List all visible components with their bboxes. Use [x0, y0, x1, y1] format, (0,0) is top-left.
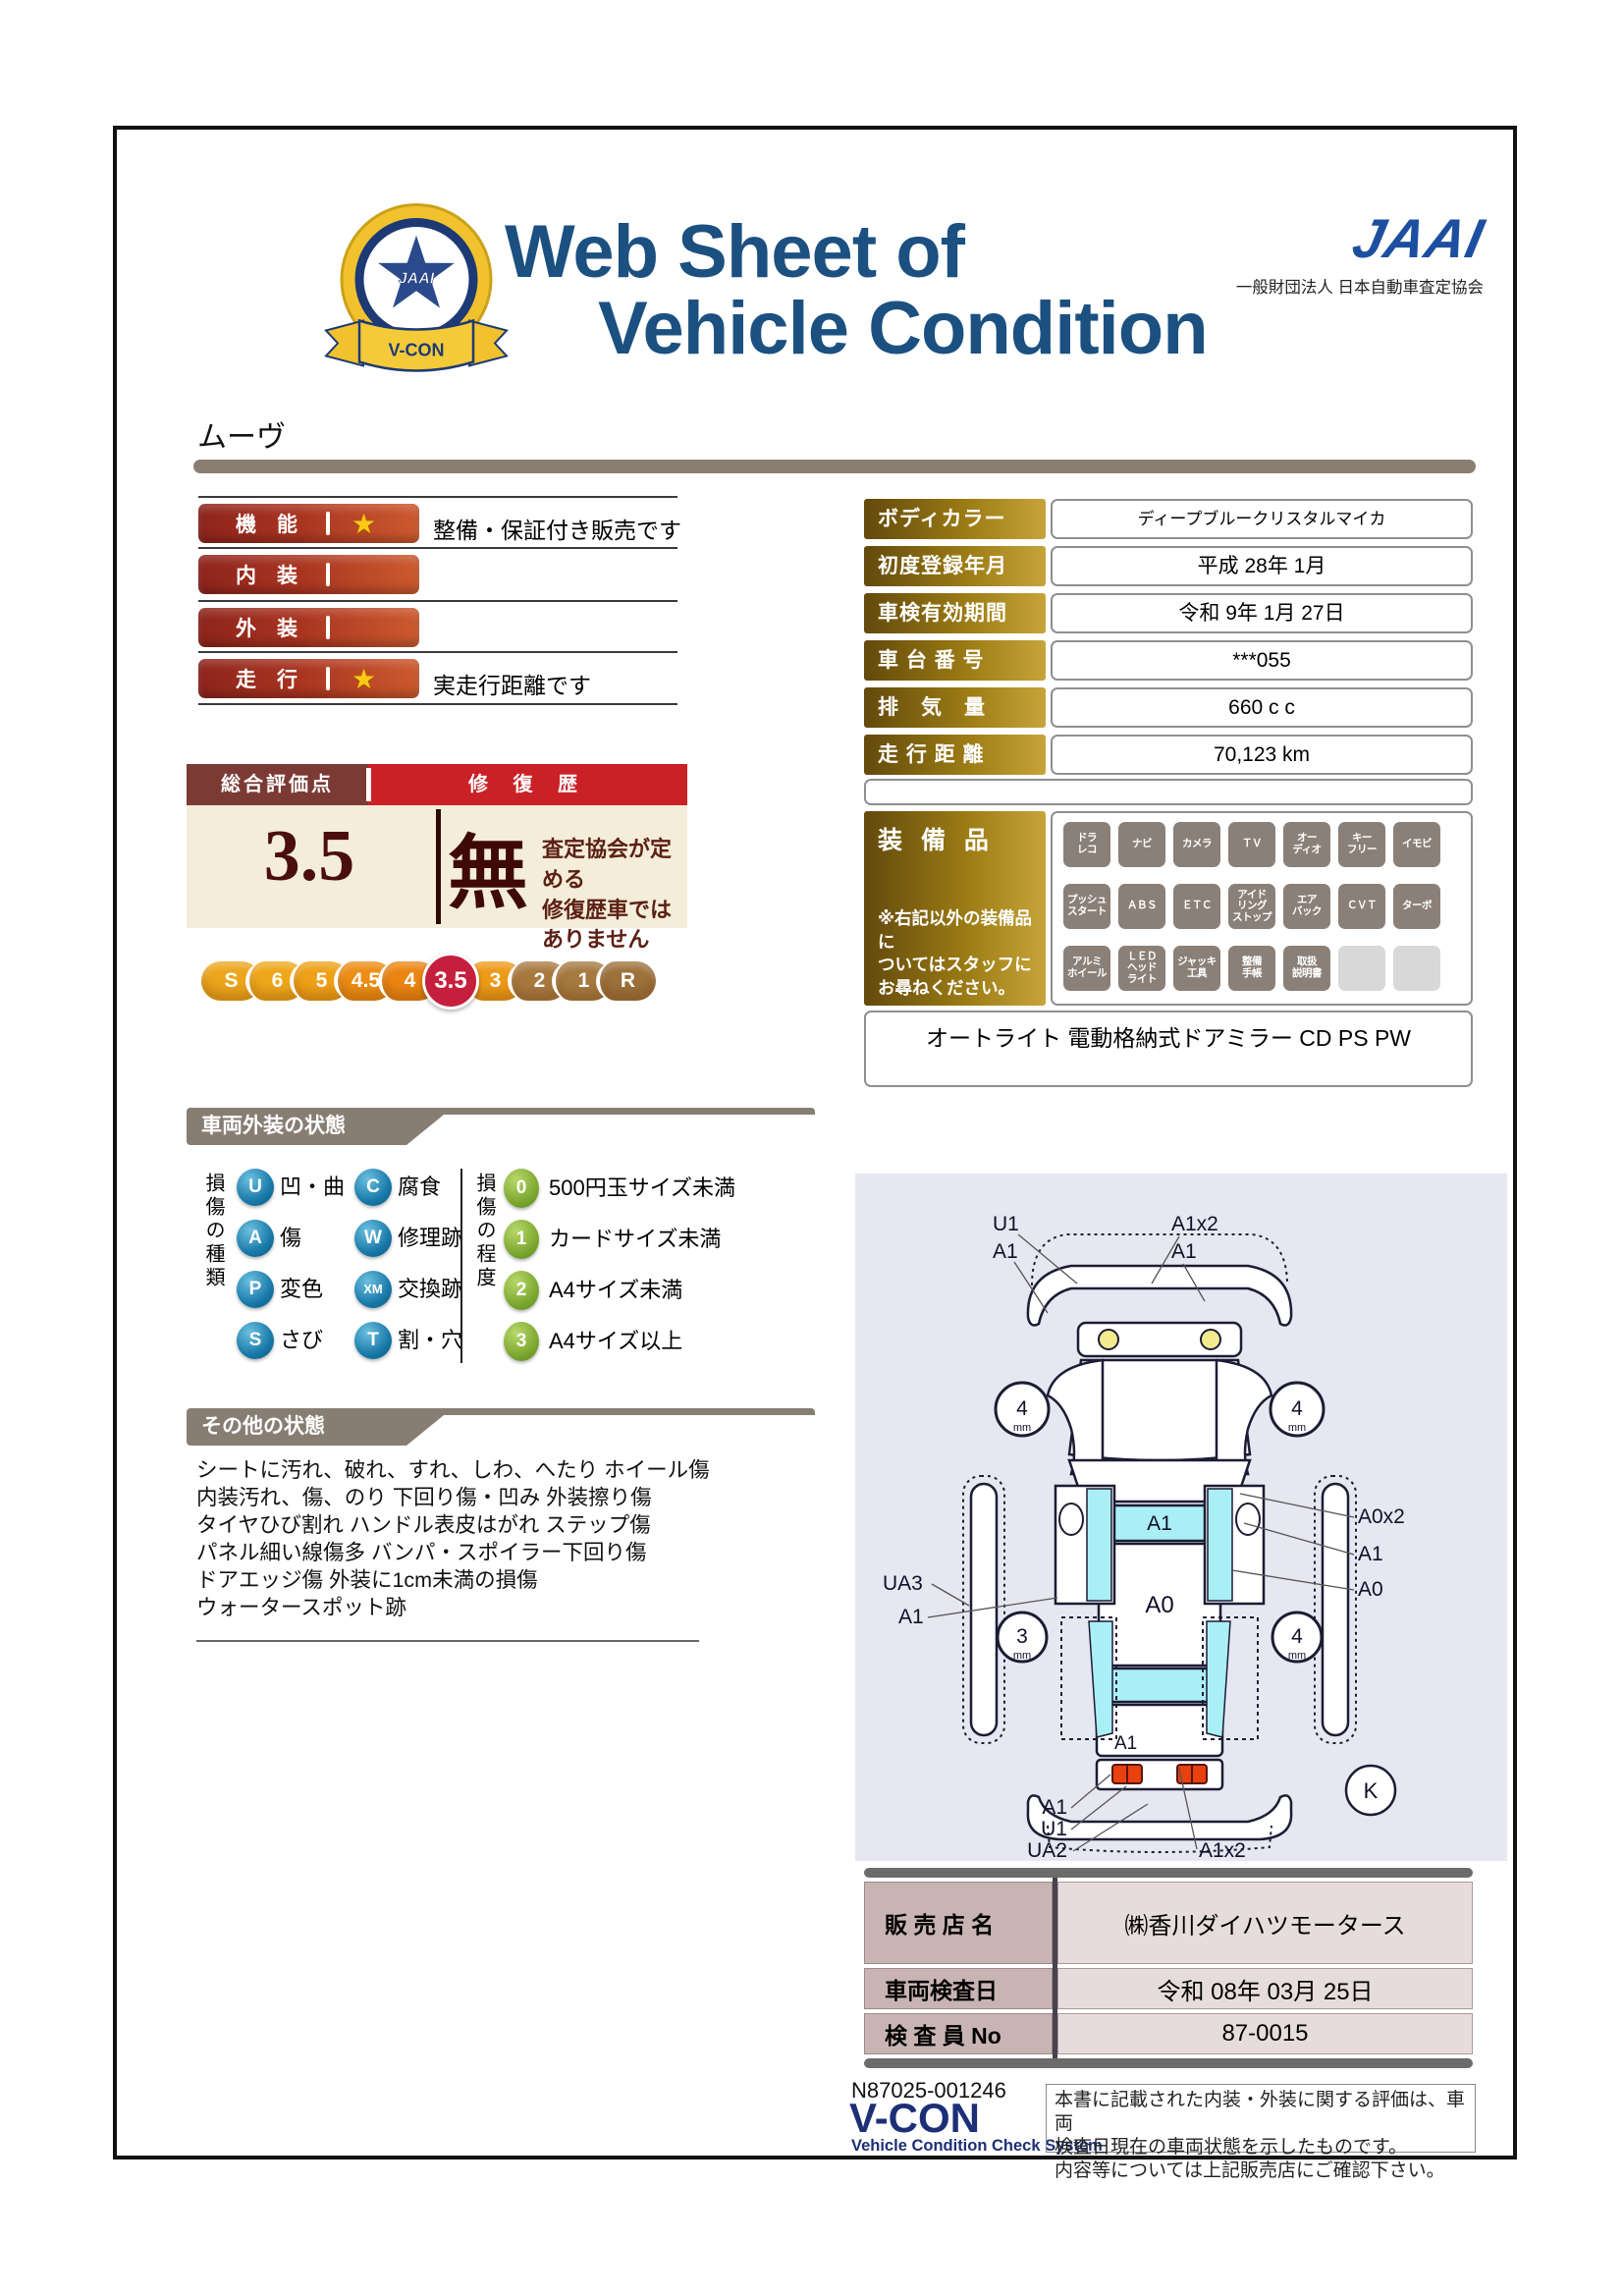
dealer-value-inspection-date: 令和 08年 03月 25日: [1057, 1968, 1473, 2009]
equipment-extra-text: オートライト 電動格納式ドアミラー CD PS PW: [864, 1011, 1473, 1087]
tread-unit: mm: [1288, 1650, 1306, 1662]
badge-jaai-text: JAAI: [399, 271, 435, 288]
degree-icon-1: 1: [504, 1220, 539, 1259]
kind-label-a: 傷: [280, 1220, 301, 1257]
tread-unit: mm: [1288, 1422, 1306, 1434]
rating-label: 機 能: [236, 509, 326, 538]
section-header-exterior: 車両外装の状態: [187, 1108, 815, 1145]
other-line: ウォータースポット跡: [196, 1595, 746, 1622]
vcon-badge-logo: VEHICLE CONDITION CHECK SYSTEM JAAI V-CO…: [318, 198, 514, 385]
kind-icon-c: C: [354, 1169, 392, 1206]
overall-score-block: 総合評価点 修 復 歴 3.5 無 査定協会が定める 修復歴車ではありません: [187, 764, 687, 928]
degree-label-0: 500円玉サイズ未満: [549, 1169, 735, 1208]
repair-history-header: 修 復 歴: [368, 764, 687, 805]
dmg-label-u1-front: U1: [993, 1213, 1019, 1235]
header-tick: [366, 768, 371, 801]
dealer-label-shop: 販 売 店 名: [864, 1882, 1053, 1964]
rating-separator: [198, 703, 677, 705]
degree-icon-3: 3: [504, 1322, 539, 1361]
overall-divider: [436, 809, 441, 924]
equip-badge-empty: [1393, 946, 1440, 991]
dmg-label-roof: A0: [1145, 1592, 1173, 1618]
info-value-mileage: 70,123 km: [1051, 735, 1473, 775]
info-value-chassis-number: ***055: [1051, 640, 1473, 681]
equip-badge-keyfree: キー フリー: [1338, 822, 1385, 867]
grade-seg-label: 4.5: [352, 969, 380, 993]
tread-front-right: 4: [1291, 1397, 1303, 1420]
dealer-label-inspector-no: 検 査 員 No: [864, 2013, 1053, 2054]
dealer-table-top-bar: [864, 1868, 1473, 1878]
other-line: タイヤひび割れ ハンドル表皮はがれ ステップ傷: [196, 1512, 746, 1540]
equip-badge-etc: ＥＴＣ: [1173, 884, 1220, 929]
info-label-mileage: 走 行 距 離: [864, 735, 1046, 775]
dmg-label-a1x2-rear: A1x2: [1199, 1839, 1246, 1861]
equip-badge-tv: ＴＶ: [1228, 822, 1275, 867]
dealer-table-bottom-bar: [864, 2058, 1473, 2068]
grade-seg-label: 6: [272, 969, 284, 993]
info-label-chassis-number: 車 台 番 号: [864, 640, 1046, 681]
info-label-inspection-valid: 車検有効期間: [864, 593, 1046, 633]
badge-ribbon-text: V-CON: [388, 341, 444, 360]
grade-seg-selected: 3.5: [422, 953, 479, 1010]
degree-label-1: カードサイズ未満: [549, 1220, 721, 1259]
kind-icon-s: S: [237, 1322, 274, 1359]
jaai-subtitle: 一般財団法人 日本自動車査定協会: [1197, 274, 1484, 298]
grade-seg: R: [596, 961, 656, 1001]
grade-seg-label: 1: [578, 969, 590, 993]
grade-seg-label: 3.5: [434, 967, 466, 995]
dealer-value-shop: ㈱香川ダイハツモータース: [1057, 1882, 1473, 1964]
rating-separator: [198, 600, 677, 602]
dmg-label-a0x2: A0x2: [1358, 1505, 1405, 1528]
rating-bar-function: 機 能 ★: [198, 504, 419, 543]
info-label-bodycolor: ボディカラー: [864, 499, 1046, 539]
equip-badge-jack-tools: ジャッキ 工具: [1173, 946, 1220, 991]
equipment-label: 装 備 品: [878, 827, 995, 854]
rating-separator: [198, 547, 677, 549]
car-damage-diagram: U1 A1 A1x2 A1 UA3 A1 A0x2 A1 A0 A1 U1 UA…: [855, 1174, 1507, 1866]
legend-divider: [460, 1169, 462, 1363]
dmg-label-trunk: A1: [1114, 1733, 1137, 1754]
kind-icon-w: W: [354, 1220, 392, 1257]
info-label-displacement: 排 気 量: [864, 687, 1046, 728]
page-title-line1: Web Sheet of: [505, 210, 964, 294]
degree-icon-0: 0: [504, 1169, 539, 1208]
jaai-logo: JAAI 一般財団法人 日本自動車査定協会: [1197, 206, 1484, 298]
equip-badge-camera: カメラ: [1173, 822, 1220, 867]
dmg-label-ua2-rear: UA2: [1027, 1839, 1067, 1861]
info-label-first-registration: 初度登録年月: [864, 546, 1046, 586]
sheet-frame: VEHICLE CONDITION CHECK SYSTEM JAAI V-CO…: [113, 126, 1517, 2159]
section-header-other: その他の状態: [187, 1408, 815, 1446]
equip-badge-turbo: ターボ: [1393, 884, 1440, 929]
tread-rear-right: 4: [1291, 1625, 1303, 1648]
dmg-label-a0-right: A0: [1358, 1578, 1383, 1601]
overall-score-value: 3.5: [187, 815, 432, 899]
degree-label-2: A4サイズ未満: [549, 1271, 682, 1310]
equip-badge-abs: ＡＢＳ: [1118, 884, 1165, 929]
dmg-label-a1-front: A1: [993, 1240, 1018, 1263]
kind-icon-xm: XM: [354, 1271, 392, 1308]
kind-icon-u: U: [237, 1169, 274, 1206]
other-section-divider: [196, 1640, 699, 1642]
kind-label-w: 修理跡: [398, 1220, 462, 1257]
equip-badge-manual: 取扱 説明書: [1283, 946, 1330, 991]
page-title-line2: Vehicle Condition: [598, 291, 1208, 367]
equip-badge-maintenance-book: 整備 手帳: [1228, 946, 1275, 991]
kind-icon-a: A: [237, 1220, 274, 1257]
star-icon: ★: [352, 508, 376, 540]
equipment-grid: ドラ レコ ナビ カメラ ＴＶ オー ディオ キー フリー イモビ プッシュ ス…: [1063, 822, 1471, 991]
equip-badge-immobilizer: イモビ: [1393, 822, 1440, 867]
grade-seg-label: 5: [316, 969, 328, 993]
tread-front-left: 4: [1016, 1397, 1028, 1420]
vcon-footer-logo: V-CON: [849, 2098, 980, 2139]
dealer-table-divider: [1053, 1878, 1057, 2058]
other-line: 内装汚れ、傷、のり 下回り傷・凹み 外装擦り傷: [196, 1485, 746, 1512]
equip-badge-drive-recorder: ドラ レコ: [1063, 822, 1110, 867]
dmg-label-a1-right: A1: [1358, 1543, 1383, 1565]
equip-badge-alloy-wheel: アルミ ホイール: [1063, 946, 1110, 991]
kind-label-p: 変色: [280, 1271, 323, 1308]
rating-label: 走 行: [236, 664, 326, 693]
equip-badge-led-headlight: ＬＥＤ ヘッド ライト: [1118, 946, 1165, 991]
jaai-logo-text: JAAI: [1347, 206, 1489, 270]
vcon-badge-icon: VEHICLE CONDITION CHECK SYSTEM JAAI V-CO…: [318, 198, 514, 385]
rating-label: 内 装: [236, 560, 326, 589]
rating-tick: [326, 512, 330, 535]
equip-badge-idling-stop: アイド リング ストップ: [1228, 884, 1275, 929]
rating-label: 外 装: [236, 613, 326, 642]
equip-badge-audio: オー ディオ: [1283, 822, 1330, 867]
rating-separator: [198, 496, 677, 498]
tread-unit: mm: [1013, 1422, 1031, 1434]
damage-degree-axis-label: 損傷の程度: [470, 1173, 499, 1369]
grade-seg-label: S: [224, 969, 238, 993]
kind-icon-p: P: [237, 1271, 274, 1308]
other-line: シートに汚れ、破れ、すれ、しわ、へたり ホイール傷: [196, 1457, 746, 1485]
vehicle-model-name: ムーヴ: [197, 412, 286, 456]
equip-badge-cvt: ＣＶＴ: [1338, 884, 1385, 929]
rating-tick: [326, 616, 330, 639]
dealer-value-inspector-no: 87-0015: [1057, 2013, 1473, 2054]
degree-label-3: A4サイズ以上: [549, 1322, 682, 1361]
rating-bar-mileage: 走 行 ★: [198, 659, 419, 698]
kind-label-u: 凹・曲: [280, 1169, 345, 1206]
repair-history-value: 無: [448, 807, 528, 924]
info-value-displacement: 660 c c: [1051, 687, 1473, 728]
kind-label-s: さび: [280, 1322, 323, 1359]
rating-note: 実走行距離です: [433, 667, 591, 700]
rating-separator: [198, 651, 677, 653]
header-divider: [193, 460, 1476, 473]
grade-seg-label: 3: [490, 969, 502, 993]
other-line: ドアエッジ傷 外装に1cm未満の損傷: [196, 1567, 746, 1595]
kind-label-t: 割・穴: [398, 1322, 462, 1359]
equip-badge-pushstart: プッシュ スタート: [1063, 884, 1110, 929]
equip-badge-navi: ナビ: [1118, 822, 1165, 867]
other-condition-text: シートに汚れ、破れ、すれ、しわ、へたり ホイール傷 内装汚れ、傷、のり 下回り傷…: [196, 1457, 746, 1622]
equipment-label-cell: 装 備 品 ※右記以外の装備品に ついてはスタッフに お尋ねください。: [864, 811, 1046, 1006]
dmg-label-u1-rear: U1: [1041, 1818, 1067, 1840]
rating-bar-exterior: 外 装: [198, 608, 419, 647]
overall-score-header: 総合評価点: [187, 764, 368, 805]
grade-seg-label: 2: [534, 969, 546, 993]
footer-disclaimer: 本書に記載された内装・外装に関する評価は、車両 検査日現在の車両状態を示したもの…: [1046, 2084, 1476, 2153]
rating-bar-interior: 内 装: [198, 555, 419, 594]
kind-icon-t: T: [354, 1322, 392, 1359]
dmg-label-ua3: UA3: [883, 1572, 923, 1595]
dealer-label-inspection-date: 車両検査日: [864, 1968, 1053, 2009]
info-value-first-registration: 平成 28年 1月: [1051, 546, 1473, 586]
other-line: パネル細い線傷多 バンパ・スポイラー下回り傷: [196, 1540, 746, 1567]
rating-tick: [326, 667, 330, 690]
dmg-label-a1-left: A1: [898, 1606, 924, 1628]
equip-badge-airbag: エア バック: [1283, 884, 1330, 929]
tread-unit: mm: [1013, 1650, 1031, 1662]
equip-badge-empty: [1338, 946, 1385, 991]
dmg-label-a1-rear: A1: [1042, 1796, 1067, 1819]
car-diagram-icon: U1 A1 A1x2 A1 UA3 A1 A0x2 A1 A0 A1 U1 UA…: [855, 1174, 1507, 1861]
equipment-note: ※右記以外の装備品に ついてはスタッフに お尋ねください。: [878, 907, 1046, 1001]
kind-label-xm: 交換跡: [398, 1271, 462, 1308]
corner-mark-k: K: [1364, 1778, 1379, 1803]
info-empty-row: [864, 779, 1473, 805]
grade-seg-label: R: [621, 969, 635, 993]
info-value-inspection-valid: 令和 9年 1月 27日: [1051, 593, 1473, 633]
dmg-label-a1-front-right: A1: [1171, 1240, 1197, 1263]
degree-icon-2: 2: [504, 1271, 539, 1310]
rating-note: 整備・保証付き販売です: [433, 512, 681, 545]
damage-kind-axis-label: 損傷の種類: [199, 1173, 228, 1369]
grade-seg-label: 4: [405, 969, 416, 993]
repair-history-note: 査定協会が定める 修復歴車ではありません: [542, 835, 687, 956]
equipment-panel: ドラ レコ ナビ カメラ ＴＶ オー ディオ キー フリー イモビ プッシュ ス…: [1051, 811, 1473, 1006]
page-title: Web Sheet of Vehicle Condition: [505, 214, 1208, 366]
dmg-label-a1x2-front: A1x2: [1171, 1213, 1218, 1235]
dmg-label-windshield: A1: [1147, 1512, 1172, 1535]
star-icon: ★: [352, 663, 376, 695]
rating-tick: [326, 563, 330, 586]
info-value-bodycolor: ディープブルークリスタルマイカ: [1051, 499, 1473, 539]
kind-label-c: 腐食: [398, 1169, 441, 1206]
tread-rear-left: 3: [1016, 1625, 1028, 1648]
grade-scale: S 6 5 4.5 4 3.5 3 2 1 R: [201, 953, 656, 1010]
